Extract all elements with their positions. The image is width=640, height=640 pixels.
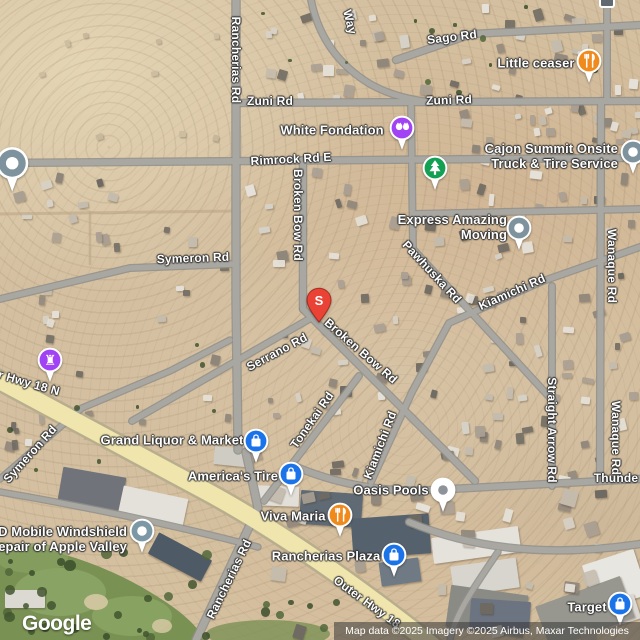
tree — [64, 560, 75, 571]
road-label-symeron-rd: Symeron Rd — [156, 250, 229, 267]
road-label-zuni-rd: Zuni Rd — [426, 92, 473, 108]
pin-chess-club-pin[interactable]: ♜ — [36, 346, 64, 384]
tree — [37, 587, 46, 596]
pin-express-moving-pin[interactable] — [505, 214, 533, 252]
tree — [200, 362, 206, 368]
tree — [4, 612, 15, 623]
pin-viva-maria-pin[interactable] — [326, 501, 354, 539]
pin-west-edge-pin[interactable] — [0, 145, 30, 194]
pin-rancherias-plaza-pin[interactable] — [380, 541, 408, 579]
dot-icon — [128, 517, 156, 555]
poi-label-d-mobile-windshield[interactable]: D Mobile Windshieldepair of Apple Valley — [0, 524, 127, 554]
road-label-rancherias-rd: Rancherias Rd — [229, 17, 243, 104]
pin-cajon-summit-pin[interactable] — [619, 138, 640, 176]
dot-icon — [0, 145, 30, 194]
tree — [320, 624, 328, 632]
search-result-marker[interactable]: S — [303, 286, 335, 324]
attribution-text: Map data ©2025 Imagery ©2025 Airbus, Max… — [345, 625, 629, 637]
pin-white-fondation-pin[interactable] — [388, 114, 416, 152]
tree-icon — [421, 154, 449, 192]
shopping-bag-icon — [242, 427, 270, 465]
dot-icon — [505, 214, 533, 252]
pin-park-pin[interactable] — [421, 154, 449, 192]
tree — [23, 603, 29, 609]
restaurant-icon — [575, 47, 603, 85]
road-label-wanaque-rd: Wanaque Rd — [609, 401, 623, 475]
tree — [164, 592, 173, 601]
restaurant-icon — [326, 501, 354, 539]
tree — [453, 23, 456, 26]
poi-label-white-fondation[interactable]: White Fondation — [280, 123, 383, 138]
tree — [480, 35, 486, 41]
tree — [114, 611, 122, 619]
poi-label-rancherias-plaza[interactable]: Rancherias Plaza — [272, 549, 381, 564]
pin-americas-tire-pin[interactable] — [277, 460, 305, 498]
dot-icon — [429, 476, 457, 514]
road-label-broken-bow-rd: Broken Bow Rd — [291, 169, 305, 261]
dot-icon — [619, 138, 640, 176]
tree — [276, 611, 284, 619]
poi-label-grand-liquor-market[interactable]: Grand Liquor & Market — [101, 433, 244, 448]
shopping-bag-icon — [380, 541, 408, 579]
tree — [261, 12, 265, 16]
poi-label-express-moving[interactable]: Express AmazingMoving — [398, 212, 507, 242]
attribution-bar: Map data ©2025 Imagery ©2025 Airbus, Max… — [334, 622, 640, 640]
poi-label-target[interactable]: Target — [567, 600, 606, 615]
pin-oasis-pools-pin[interactable] — [429, 476, 457, 514]
poi-label-oasis-pools[interactable]: Oasis Pools — [353, 483, 429, 498]
svg-text:S: S — [315, 293, 324, 308]
poi-label-viva-maria[interactable]: Viva Maria — [260, 509, 325, 524]
poi-label-little-ceaser[interactable]: Little ceaser — [497, 56, 574, 71]
chess-rook-icon: ♜ — [36, 346, 64, 384]
road-label-thunde: Thunde — [594, 471, 639, 485]
tree — [188, 580, 197, 589]
road-label-straight-arrow-rd: Straight Arrow Rd — [545, 377, 559, 483]
pin-little-ceaser-pin[interactable] — [575, 47, 603, 85]
shopping-bag-icon — [277, 460, 305, 498]
svg-text:♜: ♜ — [44, 353, 57, 369]
tree — [47, 601, 56, 610]
road-label-zuni-rd: Zuni Rd — [247, 94, 293, 108]
partial-poi-icon[interactable] — [599, 0, 615, 8]
map-canvas[interactable]: Sago RdZuni RdZuni RdRancherias RdRanche… — [0, 0, 640, 640]
tree — [489, 63, 492, 66]
tree — [261, 607, 270, 616]
tree — [7, 427, 13, 433]
pets-icon — [388, 114, 416, 152]
poi-label-cajon-summit[interactable]: Cajon Summit OnsiteTruck & Tire Service — [485, 141, 618, 171]
tree — [103, 633, 110, 640]
road-label-wanaque-rd: Wanaque Rd — [605, 229, 619, 303]
red-map-pin-icon: S — [303, 286, 335, 324]
tree — [144, 595, 152, 603]
pin-grand-liquor-pin[interactable] — [242, 427, 270, 465]
tree — [143, 631, 149, 637]
poi-label-americas-tire[interactable]: America's Tire — [188, 469, 278, 484]
tree — [425, 79, 431, 85]
pin-d-mobile-pin[interactable] — [128, 517, 156, 555]
google-logo[interactable]: Google — [22, 612, 91, 636]
tree — [524, 5, 528, 9]
